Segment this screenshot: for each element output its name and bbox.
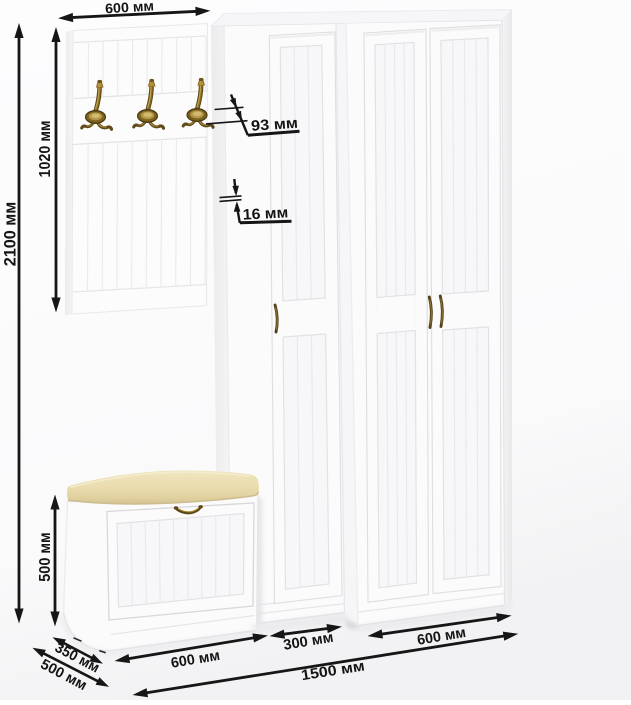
svg-text:500 мм: 500 мм xyxy=(37,532,54,582)
svg-text:1020 мм: 1020 мм xyxy=(37,121,54,178)
svg-text:93 мм: 93 мм xyxy=(250,115,298,135)
svg-text:16 мм: 16 мм xyxy=(242,204,288,223)
svg-text:2100 мм: 2100 мм xyxy=(2,202,20,267)
